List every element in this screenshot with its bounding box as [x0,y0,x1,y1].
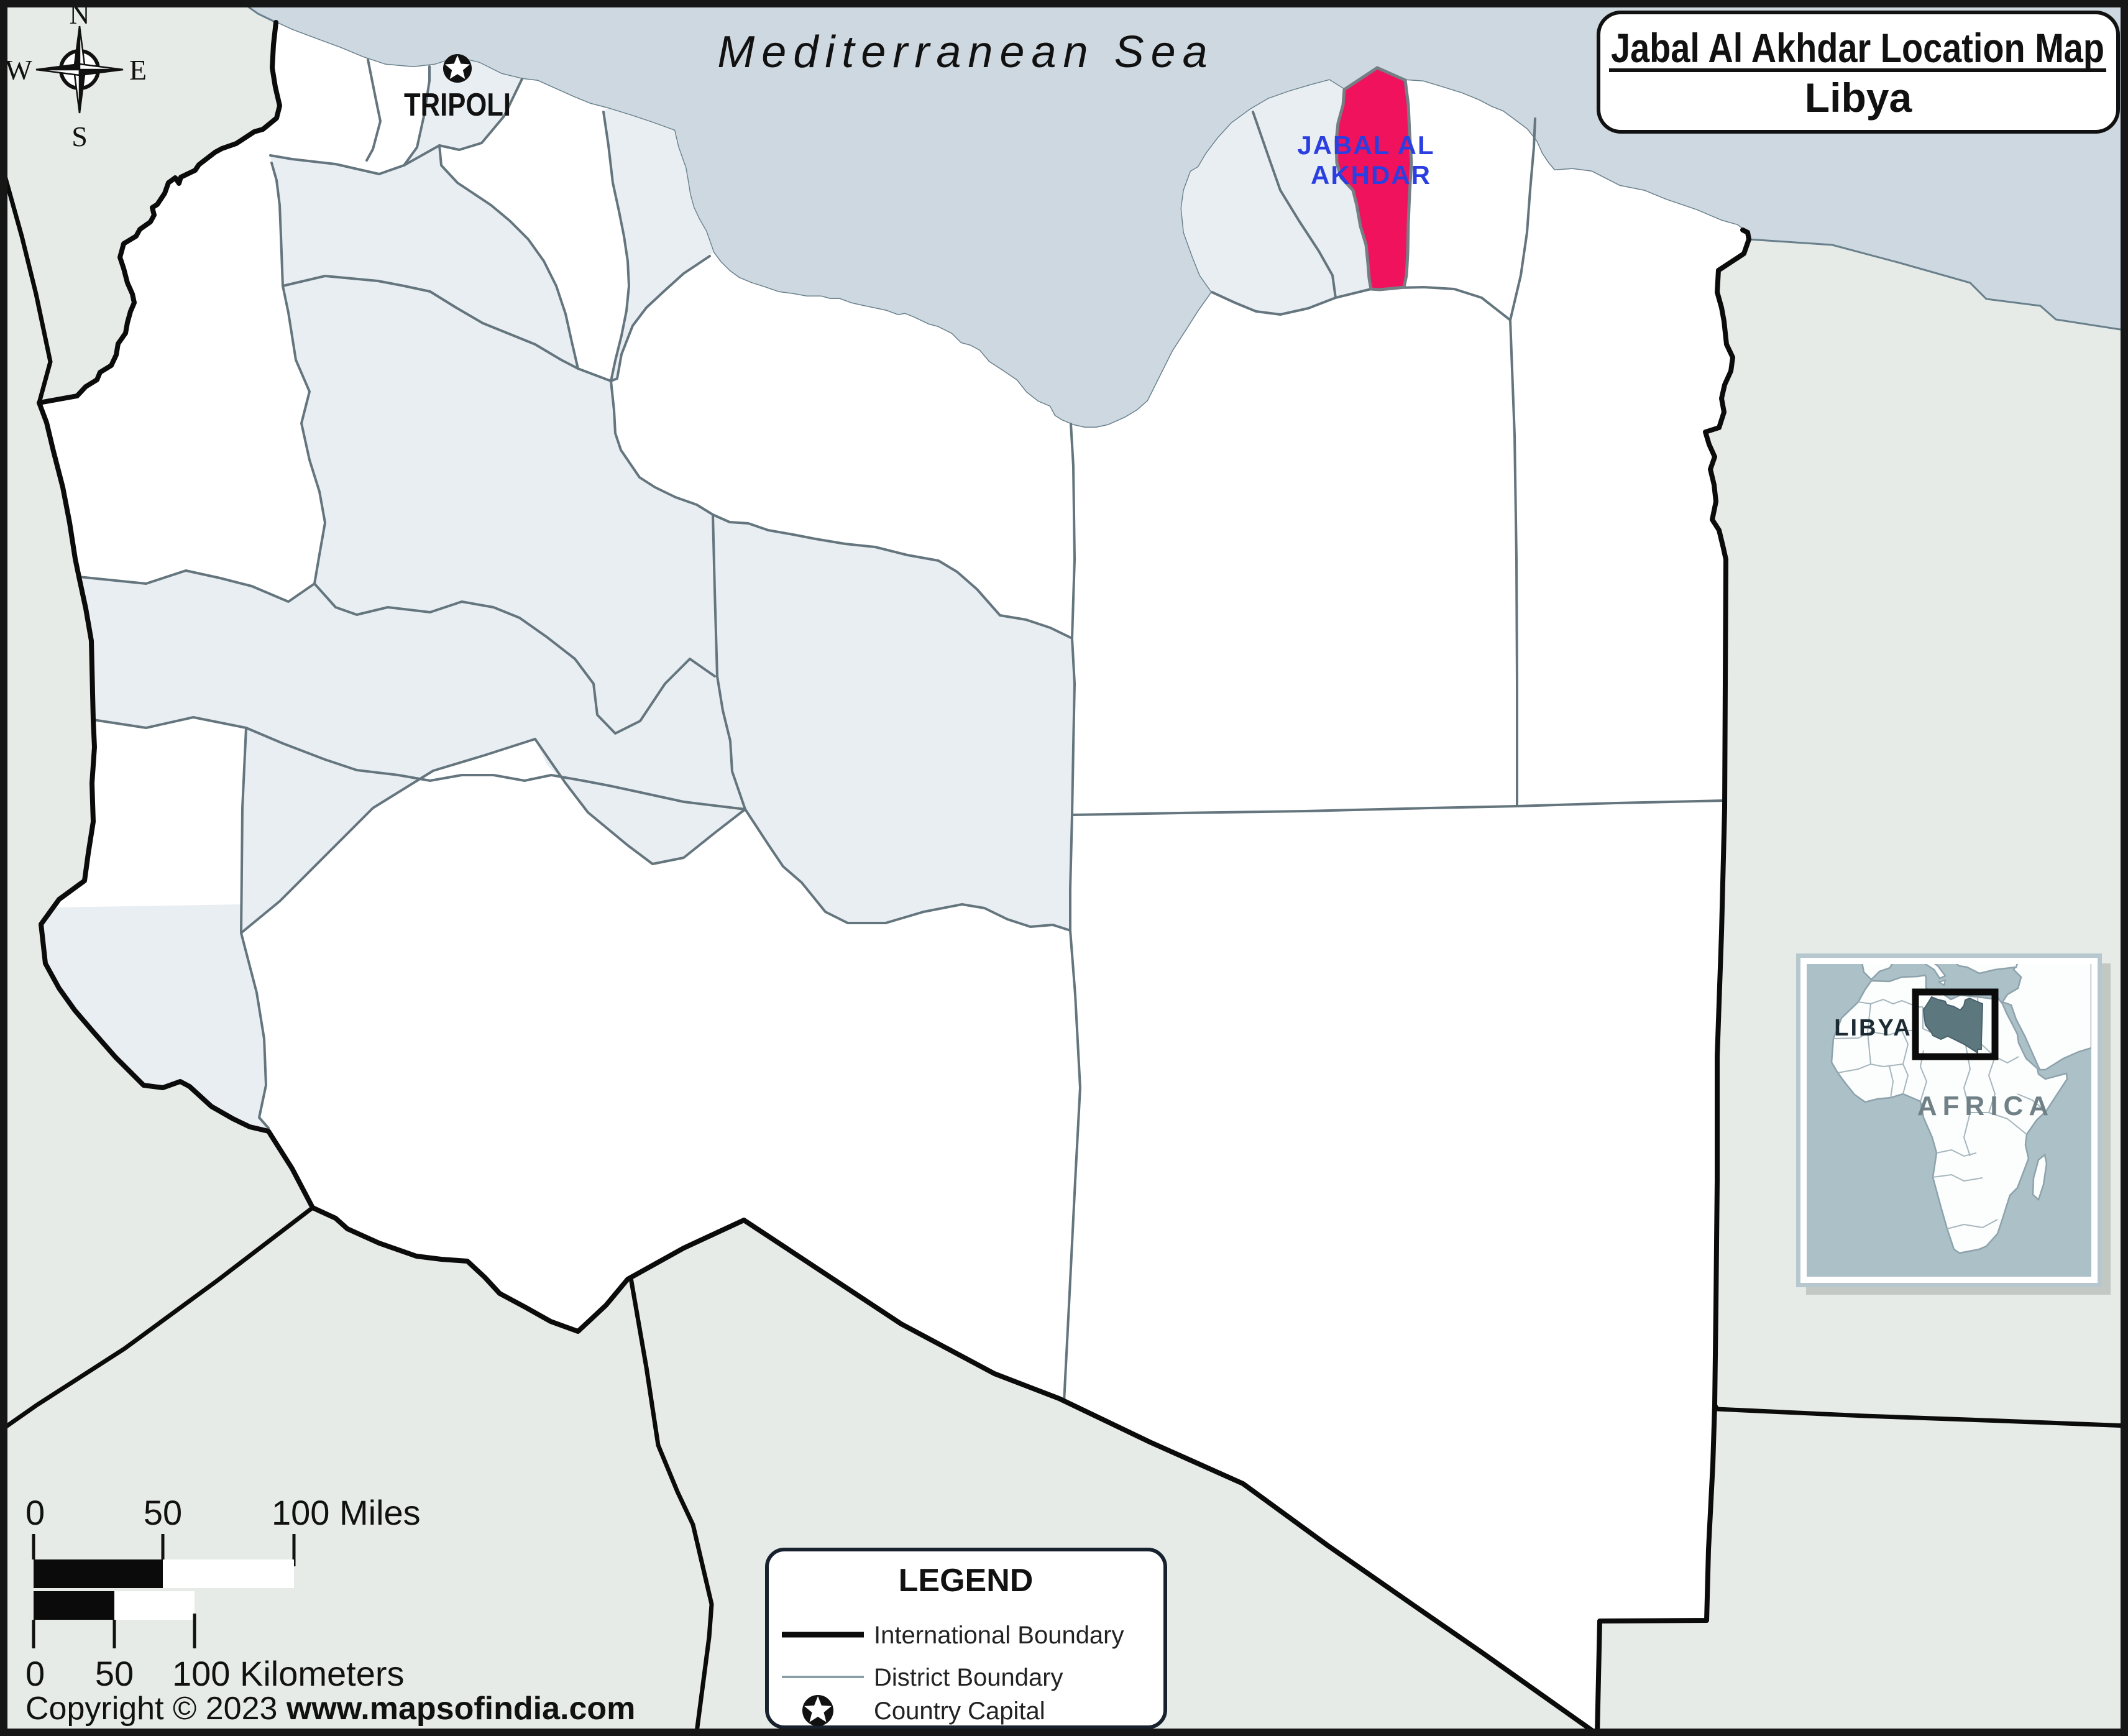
svg-text:0: 0 [25,1493,45,1532]
svg-text:Jabal Al Akhdar Location Map: Jabal Al Akhdar Location Map [1611,25,2104,71]
svg-text:Copyright © 2023 www.mapsofind: Copyright © 2023 www.mapsofindia.com [25,1691,635,1727]
svg-text:50: 50 [95,1654,134,1693]
svg-text:50: 50 [144,1493,182,1532]
svg-text:0: 0 [25,1654,45,1693]
svg-text:AKHDAR: AKHDAR [1311,160,1431,190]
svg-text:International Boundary: International Boundary [874,1622,1124,1649]
svg-text:Country Capital: Country Capital [874,1697,1045,1725]
svg-text:100 Miles: 100 Miles [272,1493,421,1532]
svg-text:TRIPOLI: TRIPOLI [404,87,511,123]
svg-text:Mediterranean Sea: Mediterranean Sea [717,27,1214,77]
svg-text:JABAL AL: JABAL AL [1297,131,1434,160]
svg-text:District Boundary: District Boundary [874,1664,1063,1691]
svg-text:E: E [129,54,147,86]
svg-text:LIBYA: LIBYA [1834,1015,1912,1041]
svg-text:S: S [71,121,88,152]
svg-text:AFRICA: AFRICA [1917,1091,2054,1121]
svg-text:W: W [5,54,32,86]
svg-text:Libya: Libya [1805,75,1913,121]
svg-text:100 Kilometers: 100 Kilometers [172,1654,405,1693]
svg-text:LEGEND: LEGEND [899,1563,1034,1599]
